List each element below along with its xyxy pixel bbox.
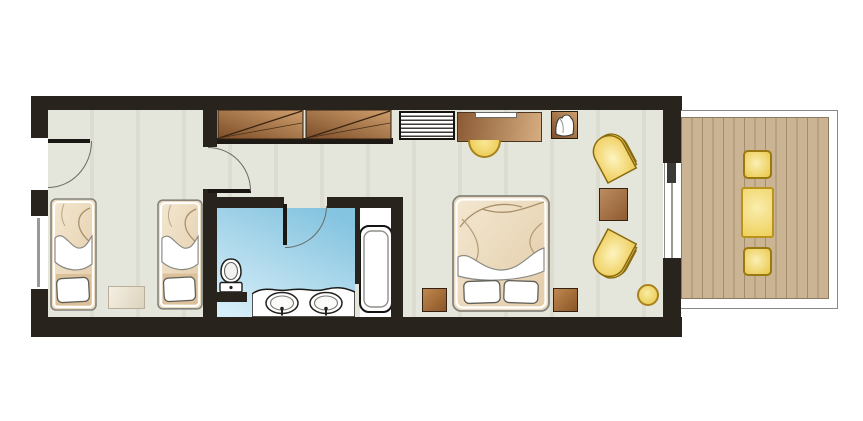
twin-bed-icon [50, 198, 97, 311]
wall-toilet-partition [217, 292, 247, 302]
wall-bathroom-right [391, 197, 403, 317]
wall-left [31, 96, 48, 138]
window-icon [37, 218, 40, 287]
wall-right [663, 258, 681, 337]
nightstand-icon [422, 288, 447, 312]
coffee-table-icon [599, 188, 628, 221]
wardrobe-icon [217, 110, 393, 144]
wall-tub-partition [355, 208, 360, 284]
rug-icon [108, 286, 145, 309]
wall-left [31, 190, 48, 218]
wall-partition [203, 189, 217, 317]
nightstand-icon [553, 288, 578, 312]
double-vanity-icon [252, 280, 355, 317]
double-bed-icon [452, 195, 550, 312]
desk-drawer-icon [475, 112, 517, 118]
wall-top [31, 96, 682, 110]
bathtub-icon [359, 224, 393, 314]
floor-plan [0, 0, 863, 421]
wall-partition [203, 110, 217, 147]
minibar-vent-icon [399, 111, 455, 140]
patio-chair-icon [743, 150, 772, 179]
patio-chair-icon [743, 247, 772, 276]
toilet-icon [217, 257, 245, 294]
wall-right [663, 96, 681, 163]
wall-bottom [31, 317, 682, 337]
round-stool-icon [637, 284, 659, 306]
wall-left [31, 287, 48, 337]
twin-bed-icon [157, 198, 203, 311]
luggage-rack-icon [551, 111, 578, 139]
wall-bathroom-top [217, 197, 284, 208]
patio-table-icon [741, 187, 774, 238]
